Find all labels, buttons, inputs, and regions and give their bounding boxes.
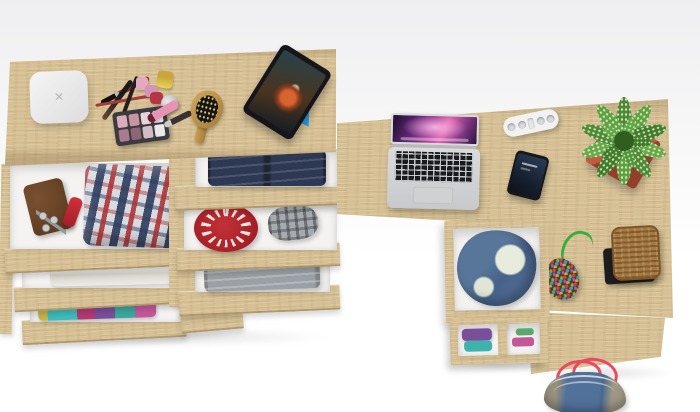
denim-jacket <box>451 224 542 312</box>
pedestal-drawer-1-interior <box>453 227 540 310</box>
folded-green-clothes <box>516 328 534 335</box>
folded-pink-clothes <box>512 337 534 347</box>
woven-basket <box>611 225 662 281</box>
lockscreen-widget <box>520 167 530 171</box>
power-socket <box>507 122 516 131</box>
bag-stripe <box>554 381 614 403</box>
corner-desk <box>0 0 700 412</box>
pedestal-drawer-2 <box>449 316 548 366</box>
potted-plant <box>578 93 670 185</box>
laptop-screen <box>390 113 479 146</box>
smartphone-screen <box>509 153 548 198</box>
laptop <box>387 113 481 210</box>
power-socket <box>536 116 545 125</box>
pedestal-drawer-2-interior <box>458 323 541 356</box>
laptop-keyboard <box>394 151 473 183</box>
pedestal-drawer-divider <box>498 324 508 355</box>
laptop-trackpad <box>413 186 453 204</box>
scene: ✕ <box>0 0 700 412</box>
power-switch <box>527 117 535 129</box>
plant-center <box>614 131 634 151</box>
power-socket <box>546 114 555 123</box>
pedestal-drawer-1 <box>444 219 550 323</box>
power-socket <box>517 120 526 129</box>
folded-teal-clothes <box>464 340 492 352</box>
laptop-dock <box>401 137 469 142</box>
duffel-bag <box>544 362 628 412</box>
folded-purple-clothes <box>462 328 492 341</box>
